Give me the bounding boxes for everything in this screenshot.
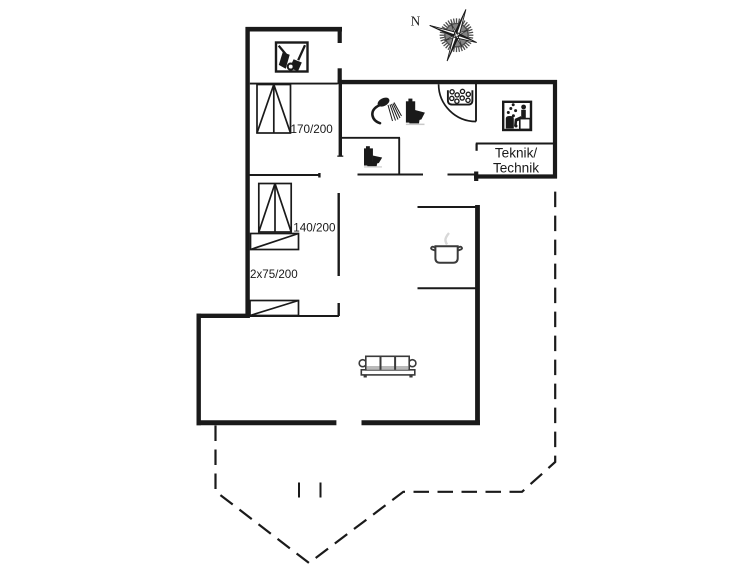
svg-text:140/200: 140/200 <box>293 222 336 235</box>
svg-text:Teknik/: Teknik/ <box>495 146 538 161</box>
svg-text:N: N <box>411 14 421 29</box>
svg-text:Technik: Technik <box>493 161 539 176</box>
svg-text:170/200: 170/200 <box>291 123 334 136</box>
svg-text:2x75/200: 2x75/200 <box>250 268 298 281</box>
